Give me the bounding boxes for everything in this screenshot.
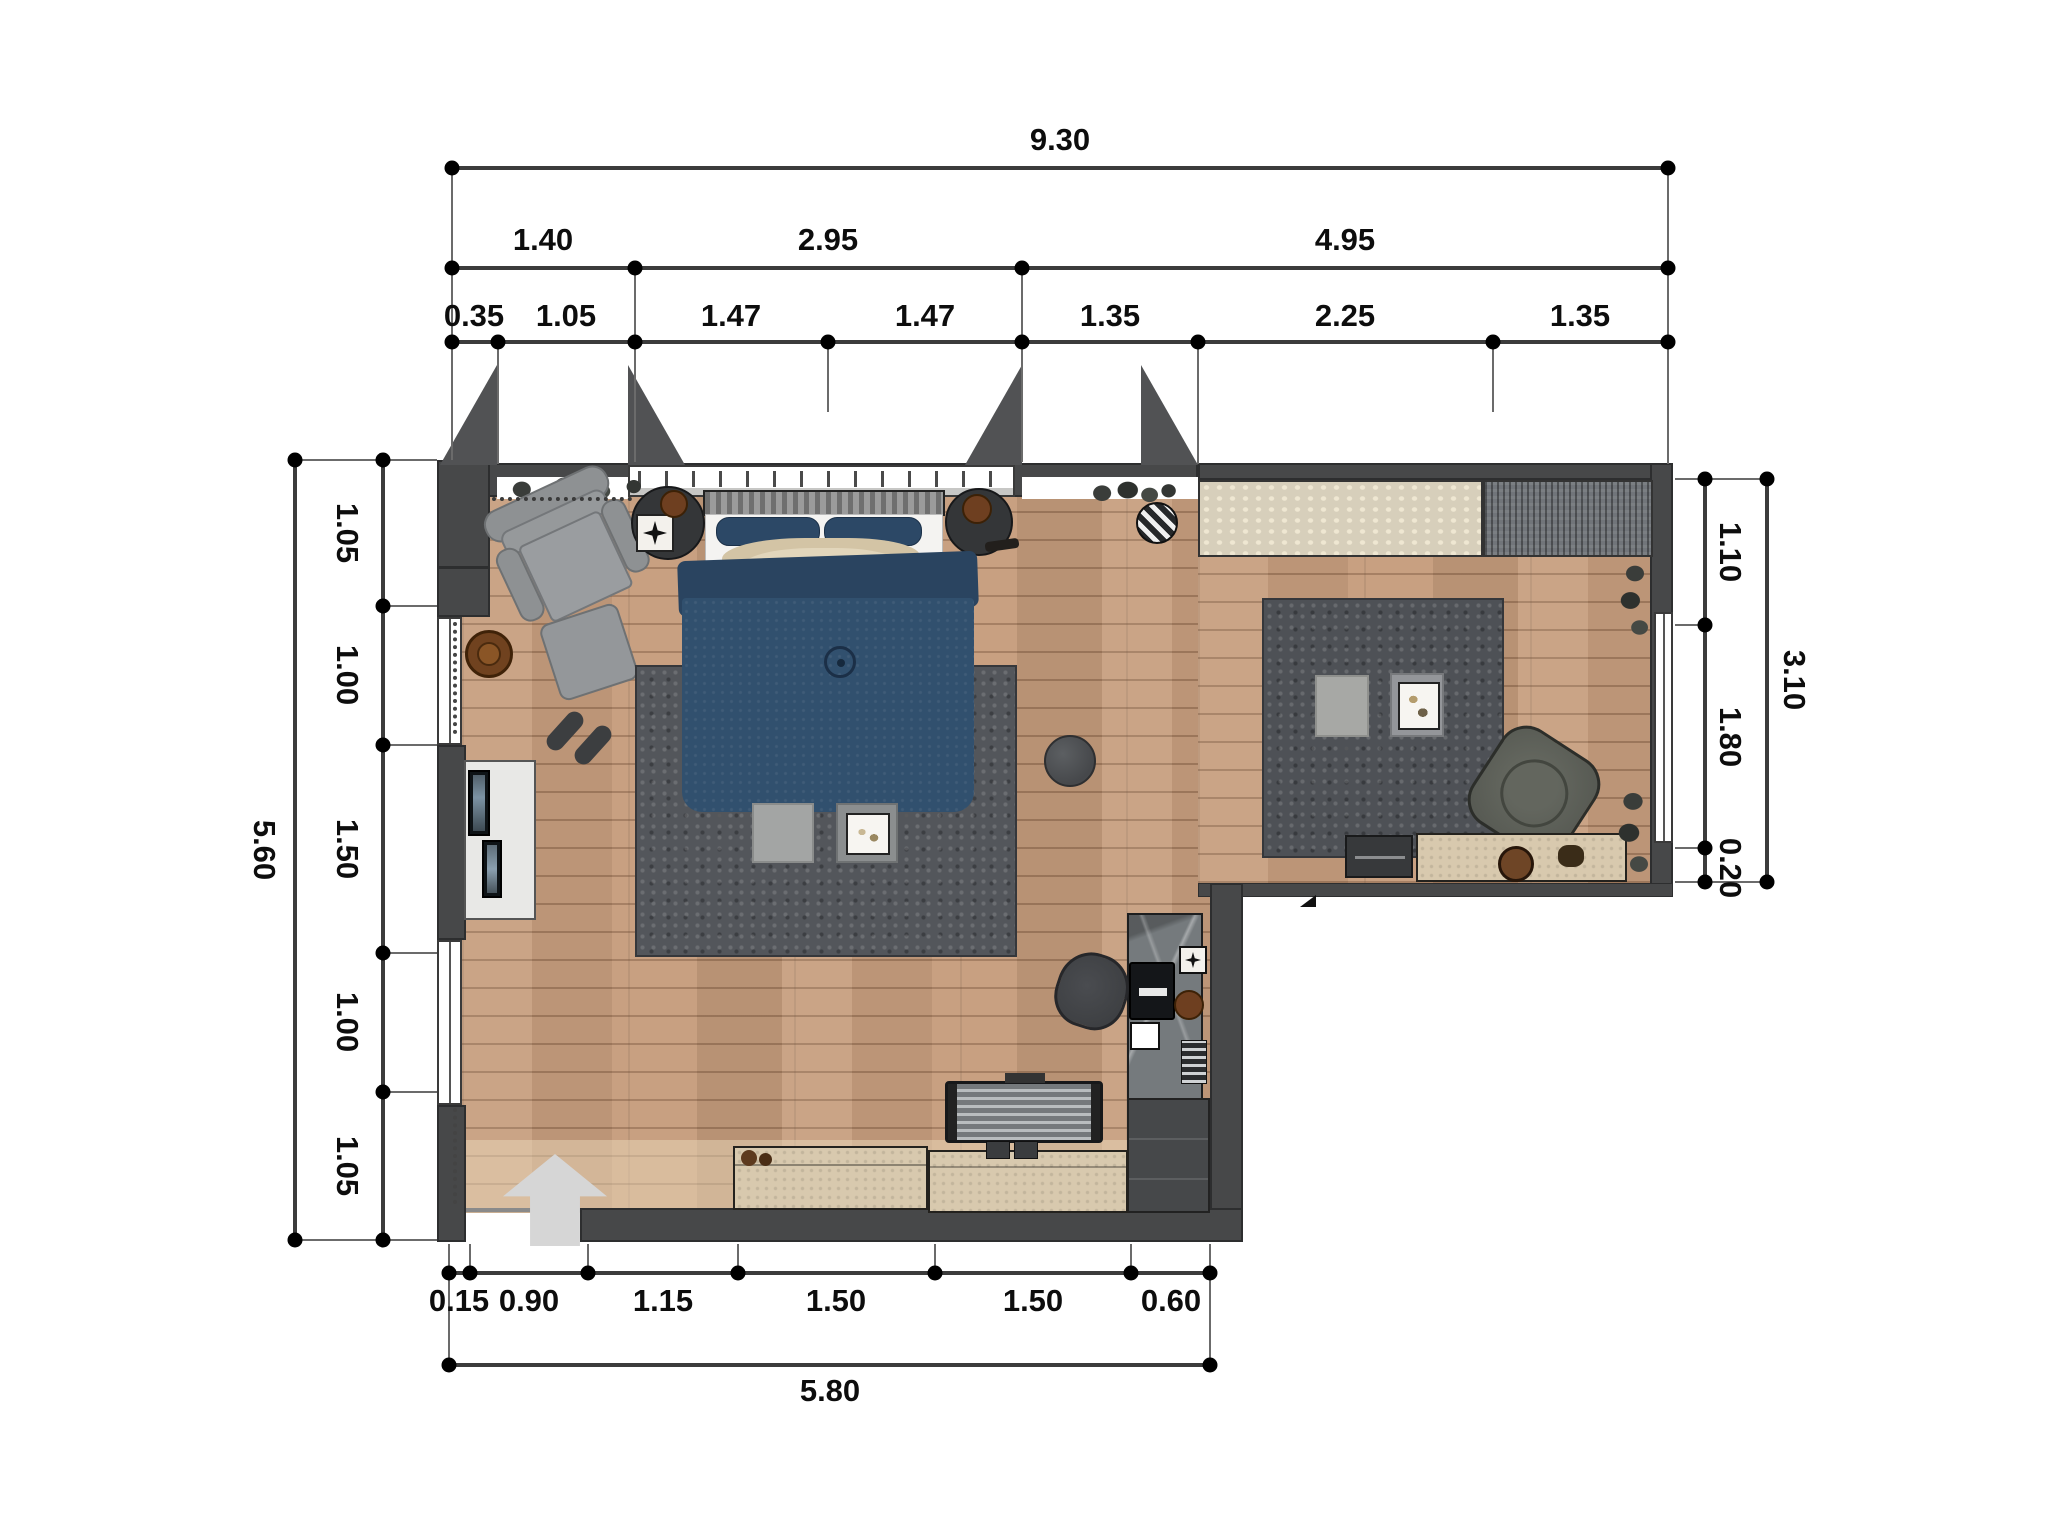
side-table-inner <box>477 642 501 666</box>
dim-dot <box>1203 1266 1218 1281</box>
picture-frame-2 <box>482 840 502 898</box>
nightstand-left-bowl <box>660 490 688 518</box>
ext-line <box>383 744 437 746</box>
floor-cushion <box>1315 675 1369 737</box>
ext-line <box>634 268 636 462</box>
window-left-lower <box>437 940 462 1105</box>
plants-top-living <box>1085 480 1180 504</box>
wall-top-right-thin <box>1198 463 1673 480</box>
wall-left-corner-block <box>437 460 490 617</box>
star-ornament <box>643 521 667 545</box>
ext-line <box>827 342 829 412</box>
tv-speaker-left <box>948 1084 957 1140</box>
dim-dot <box>1015 261 1030 276</box>
dim-line-left-total <box>293 458 297 1242</box>
decor-item <box>1558 845 1584 867</box>
dim-line-left-segments <box>381 455 385 1242</box>
dim-line-bottom-total <box>449 1363 1210 1367</box>
window-left-upper <box>437 617 462 745</box>
sideboard-left <box>733 1146 928 1210</box>
tablet <box>1130 1022 1160 1050</box>
corner-cabinet <box>1127 1098 1210 1213</box>
tv-unit-line <box>1355 856 1405 859</box>
wall-left-bottom-pier <box>437 1105 466 1242</box>
nightstand-left-tray <box>636 514 674 552</box>
dim-label: 1.40 <box>513 222 573 258</box>
dim-dot <box>1661 161 1676 176</box>
tv-foot-right <box>1014 1141 1038 1159</box>
ext-line <box>1021 268 1023 462</box>
plants-right-lower <box>1608 790 1658 885</box>
ext-line <box>1667 168 1669 464</box>
corner-block-seam <box>439 566 488 569</box>
desk-star-box <box>1179 946 1207 974</box>
dim-dot <box>445 261 460 276</box>
dim-label: 1.35 <box>1080 298 1140 334</box>
dim-line-bottom-segments <box>449 1271 1210 1275</box>
dim-dot <box>442 1358 457 1373</box>
stool <box>1498 846 1534 882</box>
desk-vent <box>1181 1040 1207 1084</box>
ext-line <box>1675 478 1767 480</box>
dim-label: 0.20 <box>1712 838 1748 898</box>
dim-label-bottom-total: 5.80 <box>800 1373 860 1409</box>
dim-dot <box>445 335 460 350</box>
dim-dot <box>1698 472 1713 487</box>
sideboard-shelf-line <box>930 1166 1126 1168</box>
door-leaf-4 <box>1141 365 1198 465</box>
hatch-top <box>492 497 632 501</box>
dim-dot <box>442 1266 457 1281</box>
ext-line <box>1209 1244 1211 1363</box>
dim-label: 0.15 <box>429 1283 489 1319</box>
tv-foot-left <box>986 1141 1010 1159</box>
dim-label: 1.50 <box>806 1283 866 1319</box>
dim-dot <box>1661 261 1676 276</box>
duvet-button-dot <box>837 659 845 667</box>
dim-label: 1.50 <box>329 819 365 879</box>
dim-dot <box>581 1266 596 1281</box>
desk-bowl <box>1174 990 1204 1020</box>
dim-dot <box>1698 875 1713 890</box>
dim-dot <box>1124 1266 1139 1281</box>
dim-dot <box>376 599 391 614</box>
dim-label: 4.95 <box>1315 222 1375 258</box>
dim-dot <box>1760 875 1775 890</box>
picture-art <box>473 775 485 831</box>
dim-label: 1.15 <box>633 1283 693 1319</box>
ext-line <box>1197 342 1199 464</box>
dim-label: 1.10 <box>1712 522 1748 582</box>
wall-bottom <box>580 1208 1243 1242</box>
lounge-chair-seat <box>1487 746 1581 840</box>
dim-line-right-total <box>1765 477 1769 884</box>
door-leaf-1 <box>440 365 497 465</box>
dim-label: 0.90 <box>499 1283 559 1319</box>
decor-bowl <box>759 1153 772 1166</box>
dim-dot <box>1191 335 1206 350</box>
ext-line <box>295 1239 437 1241</box>
dim-dot <box>491 335 506 350</box>
ext-line <box>383 605 437 607</box>
duvet <box>682 598 974 812</box>
dim-dot <box>628 335 643 350</box>
plants-right-upper <box>1612 560 1658 650</box>
dim-dot <box>376 946 391 961</box>
dim-dot <box>376 453 391 468</box>
dim-label: 2.95 <box>798 222 858 258</box>
runner-rug-dark <box>1483 480 1653 557</box>
dim-label: 1.00 <box>329 645 365 705</box>
tray-table <box>1390 673 1444 737</box>
star-ornament <box>1185 952 1201 968</box>
sideboard-right <box>928 1150 1128 1213</box>
dim-line-right-segments <box>1703 477 1707 884</box>
dim-label: 0.35 <box>444 298 504 334</box>
pouf <box>1044 735 1096 787</box>
radiator <box>1136 502 1178 544</box>
dim-label: 1.00 <box>329 992 365 1052</box>
ext-line <box>383 952 437 954</box>
duvet-button <box>824 646 856 678</box>
dim-label-right-total: 3.10 <box>1776 650 1812 710</box>
side-table <box>465 630 513 678</box>
dim-dot <box>288 453 303 468</box>
dim-label: 1.47 <box>895 298 955 334</box>
tv-bracket <box>1005 1073 1045 1083</box>
wall-living-bottom <box>1198 883 1673 897</box>
floor-plan-page: 9.30 1.40 2.95 4.95 0.35 1.05 1.47 1.47 … <box>0 0 2048 1536</box>
foot-cushion-gray <box>752 803 814 863</box>
cabinet-line <box>1129 1178 1208 1180</box>
dim-dot <box>1698 618 1713 633</box>
window-glass-line <box>1663 614 1665 841</box>
nightstand-right-bowl <box>962 494 992 524</box>
bed-headboard <box>703 490 945 516</box>
dim-dot <box>1486 335 1501 350</box>
ext-line <box>383 1091 437 1093</box>
picture-art <box>487 845 497 893</box>
wall-left-mid-pier <box>437 745 466 940</box>
monitor <box>1129 962 1175 1020</box>
living-rug <box>1262 598 1504 858</box>
dim-label: 1.05 <box>329 1136 365 1196</box>
foot-cushion-tray <box>836 803 898 863</box>
dim-dot <box>376 1085 391 1100</box>
dim-label: 0.60 <box>1141 1283 1201 1319</box>
dim-label: 1.80 <box>1712 707 1748 767</box>
ext-line <box>295 459 437 461</box>
window-glass-line <box>449 619 451 743</box>
decor-bowl <box>741 1150 757 1166</box>
dim-label: 1.50 <box>1003 1283 1063 1319</box>
cabinet-line <box>1129 1138 1208 1140</box>
tv-unit-dark <box>1345 835 1413 878</box>
dim-dot <box>1015 335 1030 350</box>
curtain-dots-upper <box>453 622 457 734</box>
wall-partition <box>1210 883 1243 1242</box>
dim-dot <box>1203 1358 1218 1373</box>
dim-dot <box>288 1233 303 1248</box>
foot-tray <box>846 813 890 855</box>
bench-rug-beige <box>1198 480 1483 557</box>
dim-label: 1.05 <box>329 503 365 563</box>
dim-label-top-total: 9.30 <box>1030 122 1090 158</box>
dim-dot <box>928 1266 943 1281</box>
monitor-slot <box>1139 988 1167 996</box>
dim-label-left-total: 5.60 <box>246 820 282 880</box>
window-mullions <box>638 471 1005 487</box>
dim-dot <box>376 1233 391 1248</box>
dim-dot <box>821 335 836 350</box>
dim-label: 1.05 <box>536 298 596 334</box>
dim-label: 1.35 <box>1550 298 1610 334</box>
dim-dot <box>731 1266 746 1281</box>
ext-line <box>497 342 499 464</box>
dim-dot <box>1760 472 1775 487</box>
dim-dot <box>1698 841 1713 856</box>
dim-dot <box>628 261 643 276</box>
ext-line <box>1492 342 1494 412</box>
dim-label: 1.47 <box>701 298 761 334</box>
picture-frame-1 <box>468 770 490 836</box>
window-glass-line <box>449 942 451 1103</box>
dim-line-top-total <box>452 166 1668 170</box>
curtain-dots-lower <box>453 1108 457 1204</box>
tv-speaker-right <box>1091 1084 1100 1140</box>
dim-dot <box>1661 335 1676 350</box>
tray <box>1398 682 1440 730</box>
dim-dot <box>376 738 391 753</box>
dim-dot <box>445 161 460 176</box>
door-leaf-3 <box>965 365 1022 465</box>
tv <box>945 1081 1103 1143</box>
dim-label: 2.25 <box>1315 298 1375 334</box>
dim-dot <box>463 1266 478 1281</box>
door-leaf-2 <box>628 365 685 465</box>
